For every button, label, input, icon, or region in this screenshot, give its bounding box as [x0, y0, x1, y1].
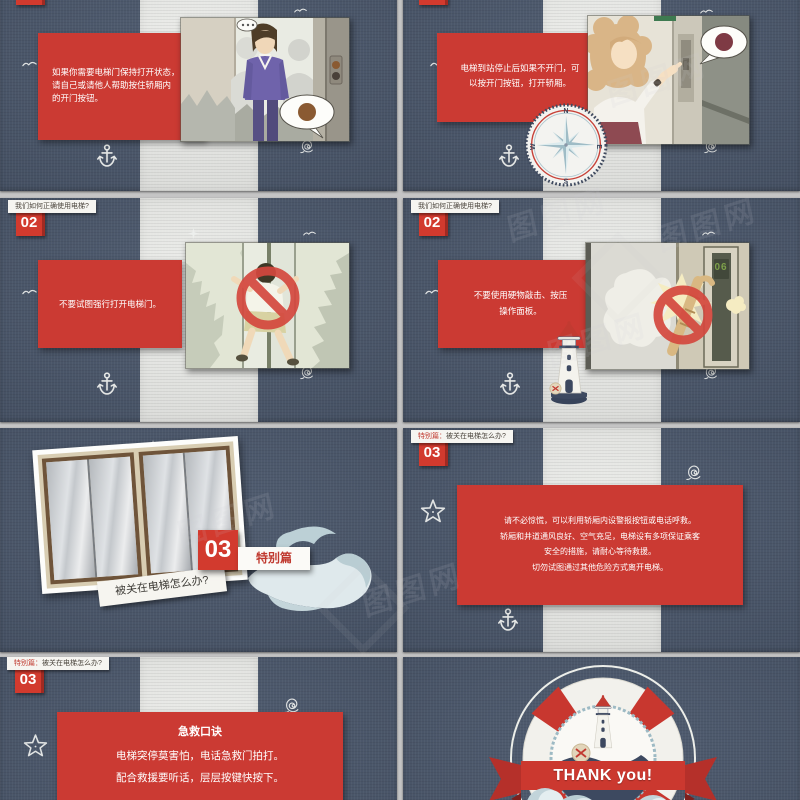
tip-line: 不要试图强行打开电梯门。: [59, 298, 161, 310]
starfish-icon: [419, 498, 447, 526]
illustration-woman-pressing-button: [587, 15, 750, 145]
section-number-badge: 03: [419, 440, 448, 466]
lighthouse-icon: [546, 321, 592, 405]
section-question-label: 特别篇：被关在电梯怎么办?: [7, 657, 109, 670]
anchor-icon: [497, 607, 519, 634]
slide-preview-grid: 我们如何正确使用电梯? 02 如果你需要电梯门保持打开状态， 请自己或请他人帮助…: [0, 0, 800, 800]
advice-line: 切勿试图通过其他危险方式离开电梯。: [457, 560, 743, 576]
slide-no-prying-doors[interactable]: 我们如何正确使用电梯? 02 不要试图强行打开电梯门。: [0, 198, 397, 422]
elevator-door-left: [42, 452, 142, 584]
anchor-icon: [96, 143, 118, 170]
bird-icon: [22, 60, 37, 68]
wave-moon-shapes: [238, 520, 378, 620]
rhyme-line: 电梯突停莫害怕，电话急救门拍打。: [57, 745, 343, 767]
label-prefix: 特别篇：: [418, 433, 446, 440]
advice-text-box: 请不必惊慌，可以利用轿厢内设警报按钮或电话呼救。 轿厢和井道通风良好、空气充足，…: [457, 485, 743, 605]
door-leaf: [89, 457, 138, 578]
rhyme-text-box: 急救口诀 电梯突停莫害怕，电话急救门拍打。 配合救援要听话，层层按键快按下。: [57, 712, 343, 800]
svg-text:N: N: [564, 108, 569, 115]
elevator-call-panel: [678, 34, 694, 102]
elevator-button-panel: [330, 56, 342, 84]
svg-text:E: E: [595, 144, 602, 149]
label-rest: 被关在电梯怎么办?: [42, 660, 102, 667]
floor-display-value: 06: [713, 258, 729, 278]
floor-indicator: [654, 16, 676, 21]
slide-section-divider-03[interactable]: 03 特别篇 被关在电梯怎么办?: [0, 428, 397, 652]
tip-line: 电梯到站停止后如果不开门，可: [437, 61, 603, 76]
section-question-label: 我们如何正确使用电梯?: [411, 200, 499, 213]
anchor-icon: [498, 143, 520, 170]
advice-line: 安全的措施，请耐心等待救援。: [457, 544, 743, 560]
rhyme-title: 急救口诀: [57, 724, 343, 740]
section-number-badge: 02: [16, 0, 45, 5]
slide-no-hitting-panel[interactable]: 我们如何正确使用电梯? 02 不要使用硬物敲击、按压 操作面板。: [403, 198, 800, 422]
section-question-label: 特别篇：被关在电梯怎么办?: [411, 430, 513, 443]
tip-text-box: 不要试图强行打开电梯门。: [38, 260, 182, 348]
tip-line: 如果你需要电梯门保持打开状态，: [52, 66, 195, 79]
advice-line: 请不必惊慌，可以利用轿厢内设警报按钮或电话呼救。: [457, 513, 743, 529]
illustration-no-prying-doors: [185, 242, 350, 369]
bird-icon: [700, 8, 713, 15]
bird-icon: [702, 230, 715, 237]
tip-line: 的开门按钮。: [52, 92, 195, 105]
slide-press-open-button[interactable]: 我们如何正确使用电梯? 02 电梯到站停止后如果不开门，可 以按开门按钮，打开轿…: [403, 0, 800, 191]
starfish-icon: [22, 733, 49, 760]
slide-trapped-advice[interactable]: 特别篇：被关在电梯怎么办? 03 请不必惊慌，可以利用轿厢内设警报按钮或电话呼救…: [403, 428, 800, 652]
thank-you-banner-text: THANK you!: [521, 761, 685, 790]
svg-text:S: S: [563, 177, 568, 184]
slide-thank-you[interactable]: THANK you!: [403, 657, 800, 800]
section-number-badge: 02: [419, 0, 448, 5]
advice-line: 轿厢和井道通风良好、空气充足，电梯设有多项保证乘客: [457, 529, 743, 545]
thought-bubble: [237, 19, 257, 31]
bird-icon: [22, 288, 37, 296]
slide-rescue-rhyme[interactable]: 特别篇：被关在电梯怎么办? 03 急救口诀 电梯突停莫害怕，电话急救门拍打。 配…: [0, 657, 397, 800]
illustration-man-holding-door: [180, 17, 350, 142]
sparkle-icon: [188, 228, 199, 239]
tip-line: 不要使用硬物敲击、按压: [438, 287, 603, 303]
divider-number-badge: 03: [198, 530, 238, 570]
shell-icon: [686, 462, 705, 481]
label-prefix: 特别篇：: [14, 660, 42, 667]
section-question-label: 我们如何正确使用电梯?: [8, 200, 96, 213]
compass-icon: N E S W: [523, 102, 609, 188]
tip-line: 操作面板。: [438, 303, 603, 319]
tip-line: 请自己或请他人帮助按住轿厢内: [52, 79, 195, 92]
bird-icon: [303, 230, 316, 237]
slide-open-door-tip[interactable]: 我们如何正确使用电梯? 02 如果你需要电梯门保持打开状态， 请自己或请他人帮助…: [0, 0, 397, 191]
rhyme-line: 配合救援要听话，层层按键快按下。: [57, 767, 343, 789]
section-number-badge: 03: [15, 667, 44, 693]
divider-tag-label: 特别篇: [238, 547, 310, 570]
lifebuoy-lighthouse-scene: THANK you!: [483, 665, 723, 800]
section-number-badge: 02: [419, 210, 448, 236]
section-number-badge: 02: [16, 210, 45, 236]
tip-line: 以按开门按钮，打开轿厢。: [437, 76, 603, 91]
anchor-icon: [96, 371, 118, 398]
bird-icon: [294, 7, 307, 14]
anchor-icon: [499, 371, 521, 398]
svg-text:W: W: [530, 143, 537, 150]
label-rest: 被关在电梯怎么办?: [446, 433, 506, 440]
